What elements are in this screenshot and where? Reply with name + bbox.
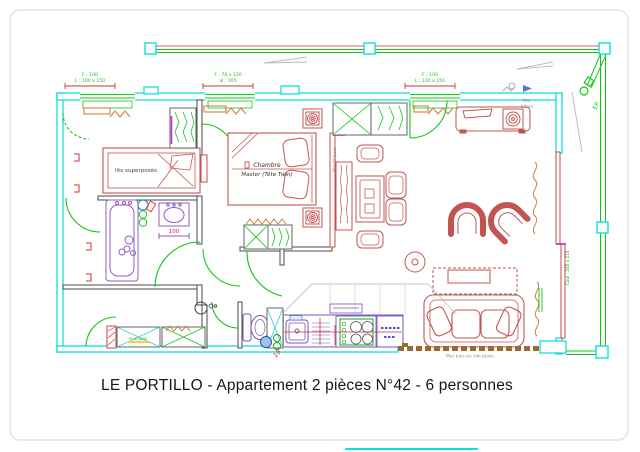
- washbasin-dim: 100: [169, 229, 180, 235]
- floor-plan-page: EP F : 100 L : 100 x 150: [0, 0, 640, 452]
- window-left-dim1: F : 100: [82, 72, 98, 78]
- curtain-squiggle: [533, 162, 536, 234]
- wood-clad-wall: Mur bois en clin blanc: [398, 349, 540, 360]
- valve-icon: [503, 83, 532, 92]
- nightstand-lamp-bottom: [303, 208, 322, 227]
- window-right-dim1: F : 100: [422, 72, 438, 78]
- master-bedroom: Chambre Master (Tête Twin): [201, 106, 322, 249]
- bedroom-wardrobe: [244, 219, 292, 249]
- armchair-1: [451, 205, 483, 234]
- balcony-railing: [145, 43, 610, 358]
- entry-closets-top: [333, 103, 407, 135]
- water-column: [138, 200, 156, 226]
- bathroom: 100: [86, 200, 189, 281]
- mur-beton-1: Mur: [523, 98, 531, 103]
- radiator-left: [84, 108, 130, 117]
- bunk-room: lits superposés: [74, 108, 200, 193]
- mur-beton-2: béton: [521, 104, 533, 109]
- entry-closet-2: [162, 326, 205, 347]
- ep-label: EP: [592, 101, 602, 111]
- bunk-room-label: lits superposés: [115, 167, 157, 174]
- window-middle-dim2: al : 105: [219, 78, 236, 84]
- dining-area: [336, 145, 406, 248]
- window-left-dim2: L : 100 x 150: [75, 78, 105, 84]
- bathtub: [106, 200, 138, 281]
- closet-label: PLACARD: [129, 336, 147, 341]
- window-middle-dim1: F : 70 x 120: [214, 72, 241, 78]
- hood: [330, 304, 362, 313]
- bedroom-label-1: Chambre: [253, 162, 281, 169]
- bunk-room-wardrobe: [170, 108, 196, 148]
- mur-bois-label: Mur bois en clin blanc: [446, 354, 495, 360]
- entry-door: [107, 326, 116, 348]
- window-middle: F : 70 x 120 al : 105: [203, 72, 255, 108]
- entry: PLACARD: [107, 302, 217, 348]
- window-right: F : 100 L : 100 x 150: [405, 72, 460, 108]
- shutter-marks: [74, 154, 79, 192]
- coffee-table: [433, 268, 517, 294]
- sliding-door-panel: [556, 152, 560, 244]
- bath-wall-marks: [86, 243, 91, 281]
- curtain-squiggle: [535, 282, 538, 336]
- radiator-bedroom: [204, 106, 246, 114]
- armchair-2: [484, 198, 527, 241]
- window-right-dim2: L : 100 x 150: [415, 78, 445, 84]
- bench: [336, 162, 352, 230]
- entry-closet-1: PLACARD: [117, 327, 160, 347]
- plan-title: LE PORTILLO - Appartement 2 pièces N°42 …: [0, 377, 614, 395]
- window-left: F : 100 L : 100 x 150: [65, 72, 135, 108]
- sliding-door-dim: Coul : 240 x 215: [565, 250, 570, 285]
- radiator-living: [414, 106, 453, 114]
- nightstand-lamp-top: [303, 109, 322, 128]
- bottom-frame-line: [345, 448, 478, 450]
- side-table: [405, 252, 425, 272]
- tv-sideboard: [456, 107, 530, 133]
- sofa: [424, 295, 524, 347]
- living-room: [333, 103, 530, 347]
- bedroom-label-2: Master (Tête Twin): [241, 171, 292, 178]
- wall-mirror: [201, 155, 207, 182]
